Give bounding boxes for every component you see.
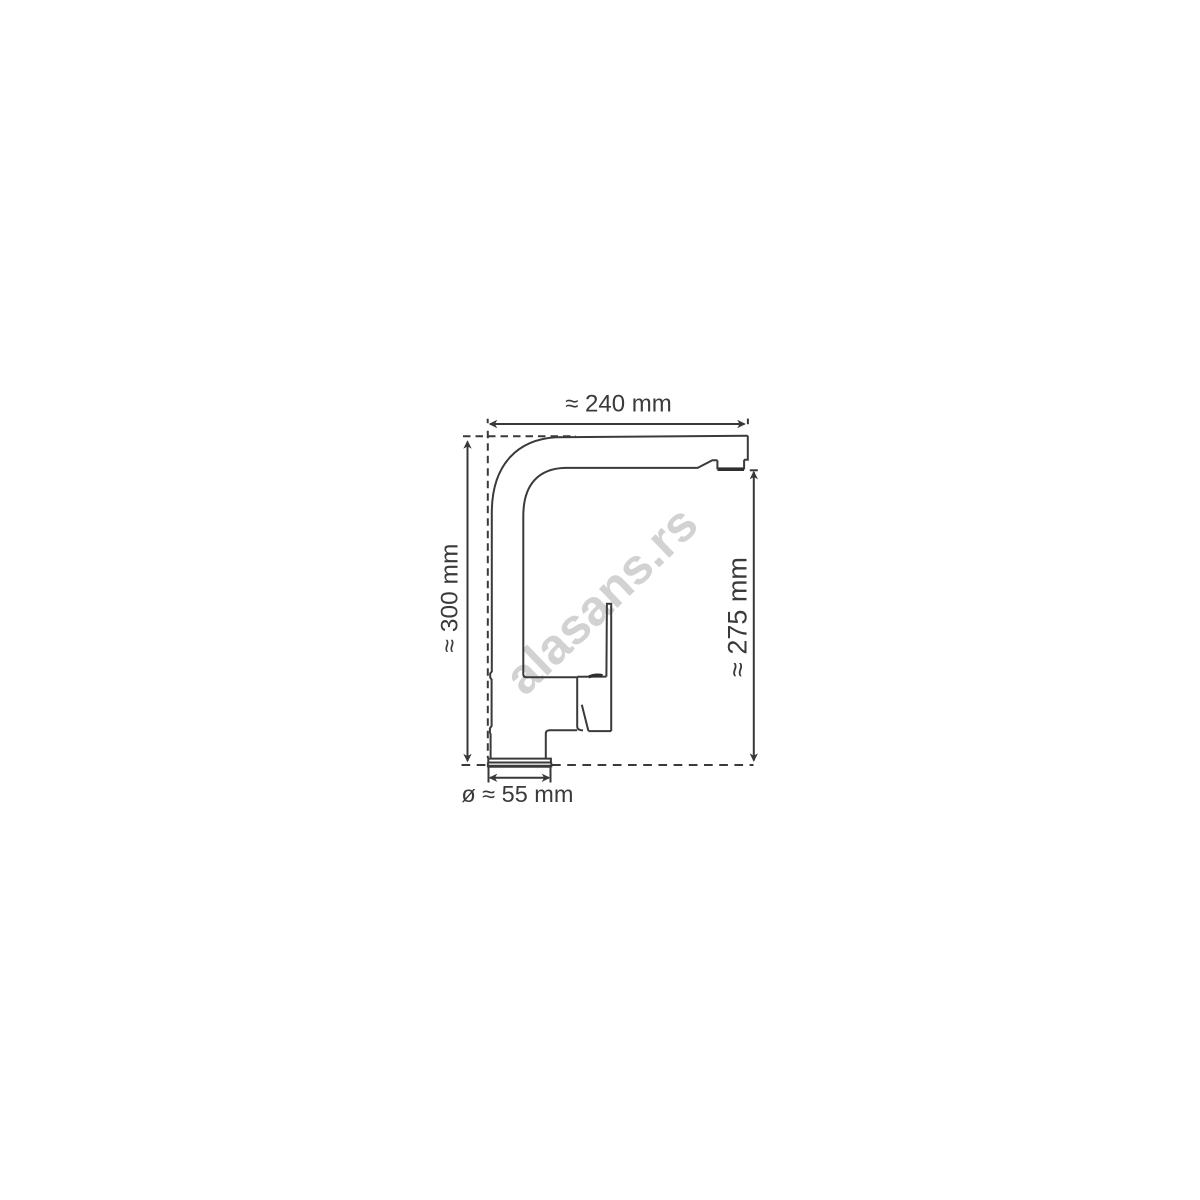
svg-text:≈ 275 mm: ≈ 275 mm xyxy=(723,557,753,677)
svg-text:≈ 300 mm: ≈ 300 mm xyxy=(437,544,464,653)
svg-text:ø ≈ 55 mm: ø ≈ 55 mm xyxy=(461,781,573,807)
svg-text:≈ 240 mm: ≈ 240 mm xyxy=(565,391,672,418)
